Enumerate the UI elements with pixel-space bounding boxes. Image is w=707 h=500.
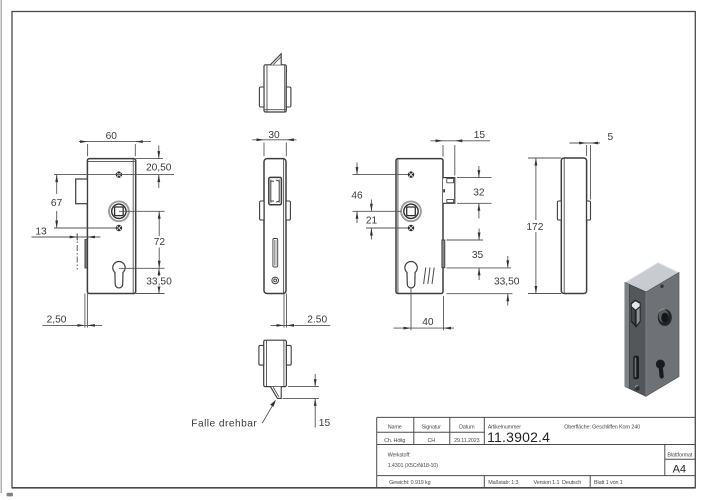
svg-text:Gewicht: 0.919 kg: Gewicht: 0.919 kg [389,480,431,486]
svg-text:20,50: 20,50 [146,163,172,174]
svg-text:2.50: 2.50 [307,314,327,325]
svg-text:72: 72 [154,237,166,248]
svg-text:Name: Name [388,424,402,430]
svg-text:33,50: 33,50 [494,277,520,288]
svg-text:Falle drehbar: Falle drehbar [191,419,257,430]
svg-text:15: 15 [474,130,486,141]
svg-text:5: 5 [607,132,613,143]
svg-text:Ch. Hölig: Ch. Hölig [384,438,405,444]
svg-text:33,50: 33,50 [146,277,172,288]
svg-text:30: 30 [268,130,280,141]
svg-text:CH: CH [428,438,436,444]
svg-text:29.11.2023: 29.11.2023 [454,438,480,444]
svg-text:Datum: Datum [459,424,475,430]
svg-text:Werkstoff:: Werkstoff: [388,452,411,458]
svg-text:Deutsch: Deutsch [562,480,581,486]
svg-text:Blatt 1 von 1: Blatt 1 von 1 [594,480,623,486]
svg-text:1.4301 (X5CrNi18-10): 1.4301 (X5CrNi18-10) [388,463,439,469]
svg-text:60: 60 [106,131,118,142]
svg-text:15: 15 [319,418,331,429]
svg-text:35: 35 [472,250,484,261]
svg-text:Signatur: Signatur [422,424,441,430]
svg-text:40: 40 [422,317,434,328]
svg-text:A4: A4 [673,464,686,476]
svg-text:172: 172 [526,222,543,233]
svg-text:32: 32 [473,188,485,199]
svg-text:67: 67 [51,198,63,209]
svg-text:2,50: 2,50 [47,314,67,325]
svg-text:Version 1.1: Version 1.1 [534,480,560,486]
svg-text:Oberfläche: Geschliffen Korn: Oberfläche: Geschliffen Korn 240 [564,424,640,430]
svg-text:21: 21 [366,216,378,227]
svg-text:Blattformat: Blattformat [667,452,693,458]
svg-text:11.3902.4: 11.3902.4 [487,429,550,445]
svg-text:46: 46 [351,191,363,202]
svg-text:Maßstab: 1:3: Maßstab: 1:3 [488,480,518,486]
svg-text:13: 13 [35,227,47,238]
